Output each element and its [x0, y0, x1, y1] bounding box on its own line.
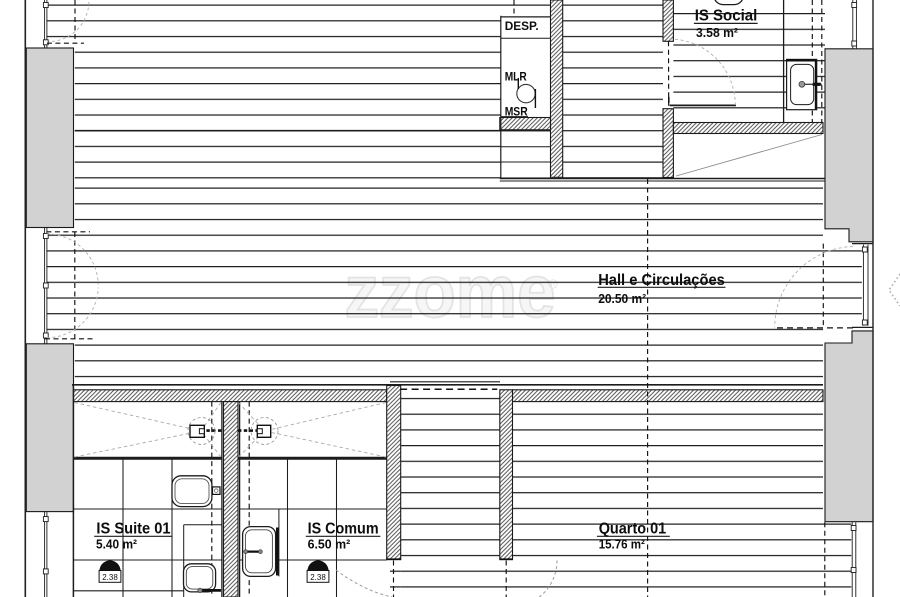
- svg-text:5.40 m²: 5.40 m²: [96, 536, 138, 551]
- svg-text:MSR: MSR: [505, 107, 529, 119]
- svg-text:2.38: 2.38: [102, 573, 118, 582]
- svg-text:DESP.: DESP.: [505, 19, 539, 33]
- svg-text:Hall e Circulações: Hall e Circulações: [598, 272, 725, 289]
- svg-text:IS Comum: IS Comum: [308, 520, 379, 537]
- svg-text:IS Social: IS Social: [695, 7, 758, 24]
- svg-text:MLR: MLR: [505, 71, 528, 83]
- svg-text:IS Suite 01: IS Suite 01: [96, 520, 170, 537]
- svg-text:Quarto 01: Quarto 01: [599, 520, 667, 537]
- svg-text:6.50 m²: 6.50 m²: [308, 536, 351, 551]
- svg-text:20.50 m²: 20.50 m²: [598, 291, 647, 306]
- svg-text:2.38: 2.38: [310, 573, 326, 582]
- svg-text:15.76 m²: 15.76 m²: [599, 536, 646, 551]
- svg-text:3.58 m²: 3.58 m²: [696, 25, 739, 40]
